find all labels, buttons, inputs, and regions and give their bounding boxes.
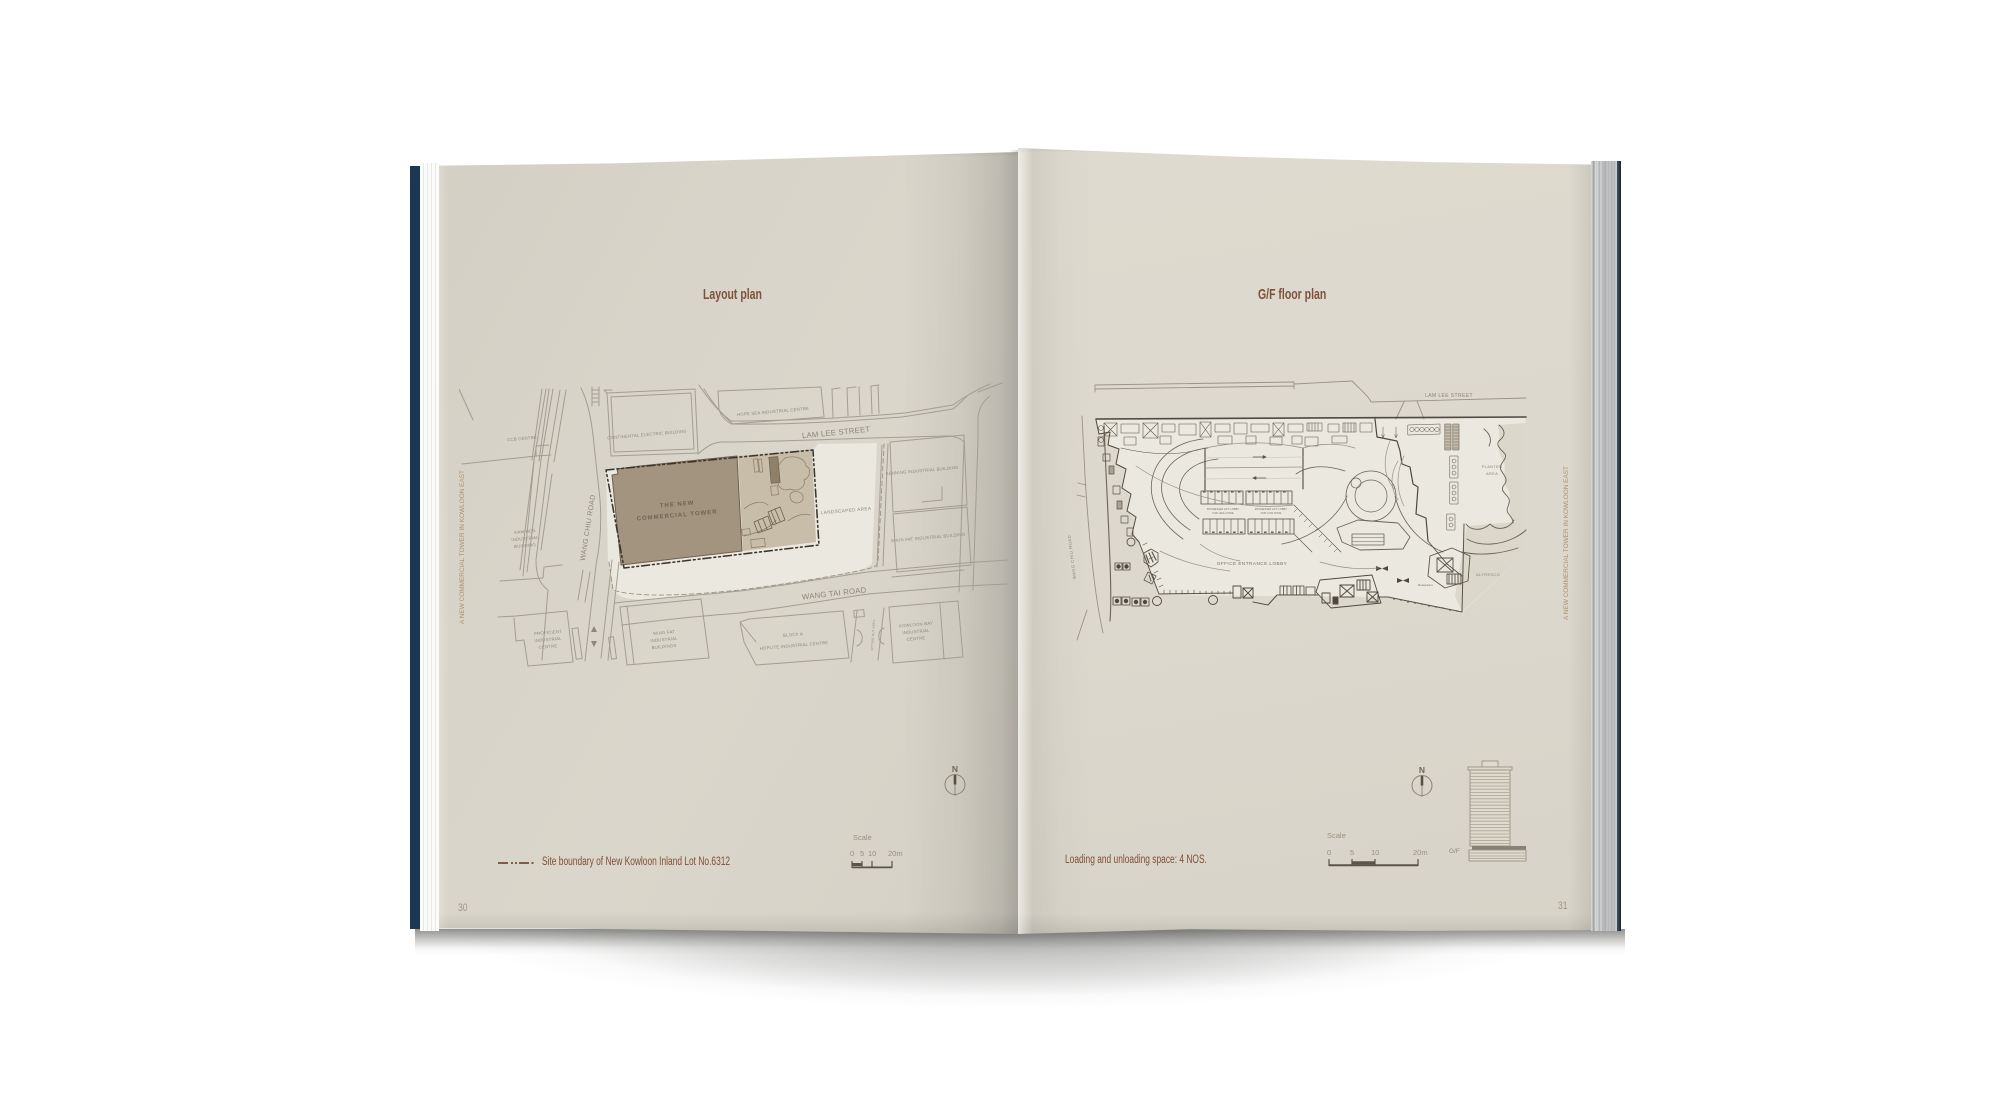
svg-text:WANG CHIU ROAD: WANG CHIU ROAD [1067,535,1077,580]
svg-text:INDUSTRIAL: INDUSTRIAL [650,636,678,643]
svg-text:CONTINENTAL ELECTRIC BUILDING: CONTINENTAL ELECTRIC BUILDING [607,429,687,441]
svg-text:FOR LOW ZONE: FOR LOW ZONE [1261,511,1282,515]
svg-text:BUILDING: BUILDING [514,542,537,549]
svg-text:HOPLITE INDUSTRIAL CENTRE: HOPLITE INDUSTRIAL CENTRE [760,640,829,651]
svg-text:AREA: AREA [1486,471,1498,476]
svg-text:0: 0 [850,849,854,858]
svg-text:INDUSTRIAL: INDUSTRIAL [902,628,930,635]
svg-text:N: N [1419,765,1425,775]
svg-text:Restaurant: Restaurant [1418,583,1433,587]
svg-text:5: 5 [1350,848,1354,857]
svg-text:OFFICE ENTRANCE LOBBY: OFFICE ENTRANCE LOBBY [1217,561,1287,566]
svg-text:FOR HIGH ZONE: FOR HIGH ZONE [1212,511,1234,515]
svg-text:CENTRE: CENTRE [538,643,557,650]
svg-text:Scale: Scale [853,833,872,842]
svg-text:N: N [952,764,958,774]
svg-text:10: 10 [868,849,876,858]
svg-text:LAM LEE STREET: LAM LEE STREET [1425,393,1473,399]
svg-text:0: 0 [1327,848,1331,857]
svg-text:20m: 20m [1413,848,1428,857]
svg-text:INDUSTRIAL: INDUSTRIAL [511,535,539,542]
svg-text:PLANTER: PLANTER [1482,464,1503,469]
svg-text:CENTRE: CENTRE [906,635,925,642]
svg-text:KENNING INDUSTRIAL BUILDING: KENNING INDUSTRIAL BUILDING [885,465,959,476]
svg-text:HOPE SEA INDUSTRIAL CENTRE: HOPE SEA INDUSTRIAL CENTRE [737,406,810,417]
svg-text:BUILDINGS: BUILDINGS [651,643,676,650]
svg-text:KAM HON: KAM HON [514,528,536,535]
svg-text:PASSENGER LIFT LOBBY: PASSENGER LIFT LOBBY [1207,507,1240,511]
svg-text:20m: 20m [888,849,903,858]
svg-text:G/F: G/F [1449,848,1460,855]
svg-text:BLOCK A: BLOCK A [783,631,803,638]
svg-text:10: 10 [1371,848,1379,857]
svg-text:ALFRESCO: ALFRESCO [1476,572,1500,577]
svg-text:WING FAT: WING FAT [653,629,676,636]
svg-text:CCB CENTRE: CCB CENTRE [507,435,537,443]
svg-text:5: 5 [860,849,864,858]
svg-text:WANG CHIU ROAD: WANG CHIU ROAD [580,494,597,561]
svg-text:PASSENGER LIFT LOBBY: PASSENGER LIFT LOBBY [1255,507,1288,511]
svg-text:SITTING-OUT AREA: SITTING-OUT AREA [870,619,876,650]
svg-text:Scale: Scale [1327,831,1346,840]
svg-text:PROFICIENT: PROFICIENT [534,629,563,636]
svg-text:INDUSTRIAL: INDUSTRIAL [534,636,562,643]
svg-text:SHUN FAT INDUSTRIAL BUILDING: SHUN FAT INDUSTRIAL BUILDING [891,532,966,544]
